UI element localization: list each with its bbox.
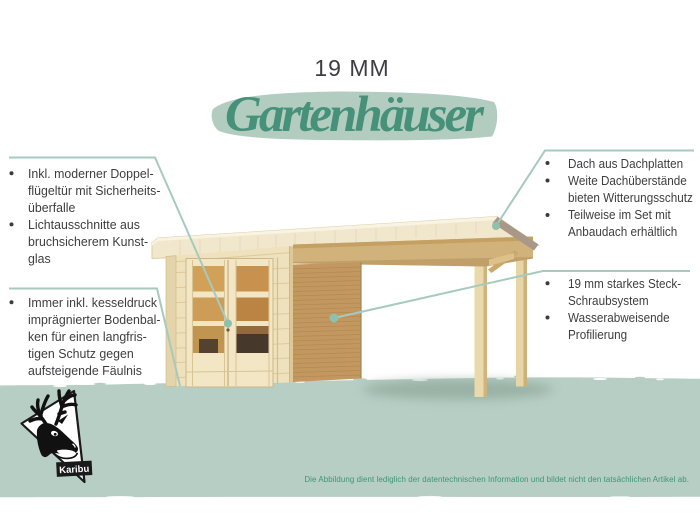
svg-text:Gartenhäuser: Gartenhäuser [225, 87, 485, 143]
svg-text:Karibu: Karibu [59, 464, 90, 477]
